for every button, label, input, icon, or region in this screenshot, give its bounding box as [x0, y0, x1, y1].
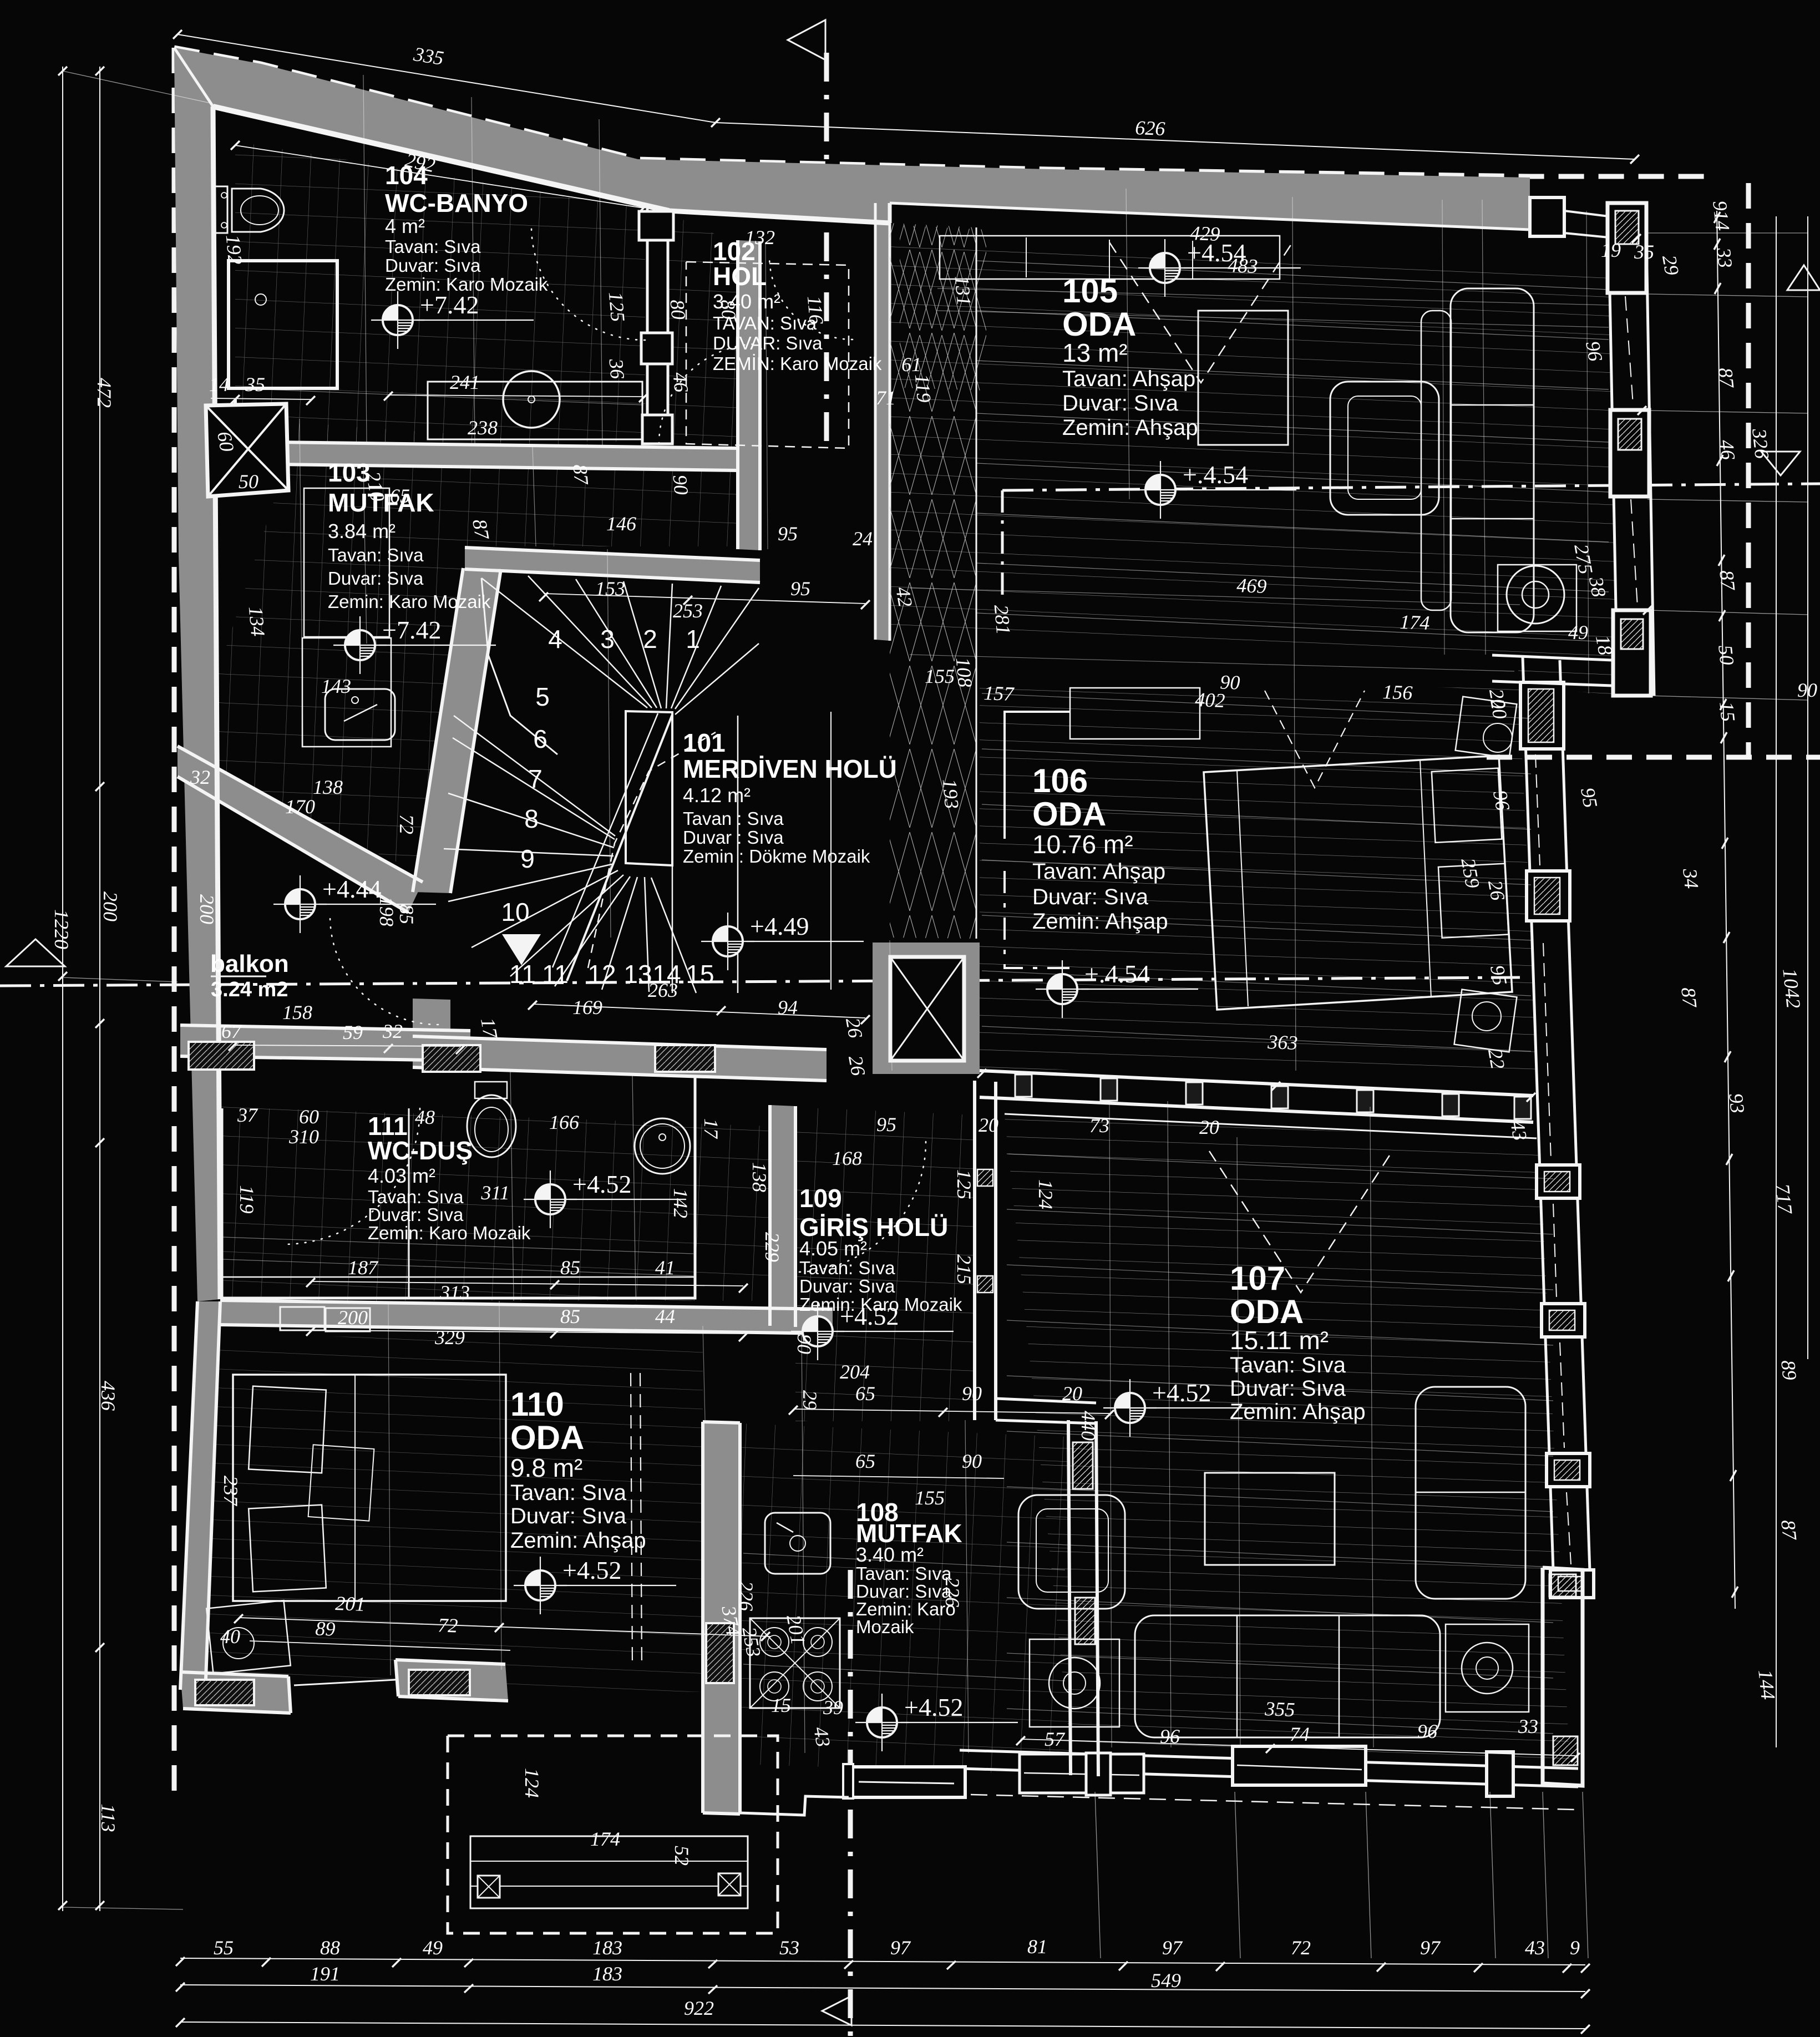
svg-text:132: 132 [745, 226, 775, 249]
svg-text:436: 436 [97, 1381, 119, 1411]
svg-text:142: 142 [670, 1188, 692, 1218]
svg-text:4.05 m²: 4.05 m² [799, 1237, 867, 1260]
svg-text:3: 3 [600, 625, 615, 653]
svg-text:+.4.54: +.4.54 [1183, 460, 1248, 489]
svg-text:200: 200 [99, 891, 121, 921]
svg-text:313: 313 [439, 1281, 470, 1304]
svg-text:34: 34 [1679, 867, 1703, 890]
svg-text:97: 97 [890, 1937, 911, 1959]
svg-text:Duvar: Sıva: Duvar: Sıva [368, 1204, 464, 1225]
svg-text:53: 53 [779, 1937, 799, 1959]
svg-text:85: 85 [560, 1256, 580, 1279]
svg-text:13 m²: 13 m² [1062, 338, 1128, 367]
svg-text:43: 43 [809, 1725, 835, 1749]
svg-text:Tavan: Sıva: Tavan: Sıva [799, 1258, 895, 1278]
svg-text:29: 29 [1658, 254, 1684, 277]
svg-text:204: 204 [840, 1361, 870, 1383]
svg-text:88: 88 [320, 1937, 340, 1959]
svg-text:Tavan: Sıva: Tavan: Sıva [510, 1481, 627, 1505]
svg-text:35: 35 [1634, 241, 1654, 263]
svg-text:55: 55 [214, 1937, 234, 1959]
svg-text:191: 191 [310, 1963, 340, 1985]
svg-text:93: 93 [1725, 1092, 1749, 1114]
svg-text:Duvar: Sıva: Duvar: Sıva [385, 255, 481, 276]
svg-text:113: 113 [97, 1803, 119, 1832]
svg-text:253: 253 [673, 600, 703, 622]
svg-text:20: 20 [1486, 697, 1512, 721]
svg-text:36: 36 [605, 357, 628, 379]
svg-text:37: 37 [237, 1104, 258, 1126]
svg-text:Zemin : Dökme Mozaik: Zemin : Dökme Mozaik [683, 846, 870, 867]
svg-text:ODA: ODA [510, 1419, 584, 1456]
svg-text:626: 626 [1135, 116, 1165, 140]
svg-text:87: 87 [1677, 986, 1701, 1010]
svg-text:Tavan: Sıva: Tavan: Sıva [385, 236, 481, 257]
svg-text:96: 96 [1417, 1720, 1437, 1742]
svg-text:215: 215 [953, 1254, 975, 1284]
svg-text:87: 87 [1714, 367, 1738, 390]
svg-text:32: 32 [382, 1020, 403, 1042]
svg-text:43: 43 [1506, 1119, 1532, 1142]
svg-text:59: 59 [343, 1021, 363, 1043]
svg-text:200: 200 [338, 1306, 368, 1329]
svg-text:335: 335 [412, 43, 445, 69]
svg-text:WC-DUŞ: WC-DUŞ [368, 1136, 473, 1165]
svg-text:174: 174 [1400, 611, 1430, 634]
svg-text:174: 174 [590, 1828, 620, 1850]
svg-text:3.24 m2: 3.24 m2 [211, 978, 288, 1001]
svg-text:138: 138 [748, 1162, 770, 1192]
svg-text:3.40 m²: 3.40 m² [856, 1543, 924, 1566]
svg-text:14: 14 [209, 373, 229, 396]
svg-text:125: 125 [953, 1169, 975, 1199]
svg-text:20: 20 [979, 1114, 998, 1136]
svg-text:90: 90 [668, 474, 692, 495]
svg-text:158: 158 [282, 1001, 312, 1023]
svg-text:90: 90 [1797, 679, 1817, 701]
svg-text:326: 326 [1748, 427, 1773, 460]
svg-text:95: 95 [1576, 786, 1602, 809]
svg-text:44: 44 [655, 1305, 675, 1327]
svg-text:131: 131 [951, 275, 976, 306]
svg-text:48: 48 [415, 1106, 435, 1128]
svg-text:200: 200 [196, 894, 218, 924]
svg-text:1: 1 [686, 625, 700, 653]
svg-text:41: 41 [655, 1256, 675, 1279]
svg-text:26: 26 [1484, 879, 1509, 902]
svg-text:1220: 1220 [50, 909, 73, 949]
svg-text:80: 80 [666, 298, 690, 320]
svg-text:15: 15 [771, 1694, 791, 1716]
svg-text:90: 90 [962, 1382, 982, 1405]
svg-text:97: 97 [1420, 1937, 1441, 1959]
svg-text:49: 49 [1568, 621, 1588, 643]
svg-text:11: 11 [542, 960, 569, 989]
svg-text:+.4.54: +.4.54 [1084, 960, 1150, 988]
svg-text:74: 74 [1290, 1723, 1310, 1745]
svg-text:355: 355 [1264, 1697, 1295, 1721]
svg-text:169: 169 [572, 996, 602, 1018]
svg-text:MERDİVEN HOLÜ: MERDİVEN HOLÜ [683, 754, 897, 783]
svg-text:4.12 m²: 4.12 m² [683, 784, 751, 807]
svg-text:8: 8 [524, 804, 539, 833]
svg-text:65: 65 [855, 1450, 875, 1472]
svg-text:19: 19 [1601, 239, 1621, 261]
svg-text:101: 101 [683, 728, 726, 757]
svg-text:Zemin: Ahşap: Zemin: Ahşap [1062, 415, 1198, 440]
svg-text:50: 50 [239, 470, 258, 493]
svg-text:85: 85 [396, 904, 418, 924]
svg-text:3.84 m²: 3.84 m² [328, 520, 396, 543]
svg-text:DUVAR: Sıva: DUVAR: Sıva [713, 333, 823, 353]
svg-text:+4.49: +4.49 [750, 912, 809, 940]
svg-text:+4.52: +4.52 [572, 1170, 631, 1198]
svg-text:15.11 m²: 15.11 m² [1230, 1326, 1329, 1355]
svg-text:914: 914 [1709, 200, 1733, 232]
svg-text:ZEMİN: Karo Mozaik: ZEMİN: Karo Mozaik [713, 353, 882, 374]
svg-text:144: 144 [1754, 1669, 1779, 1701]
svg-text:42: 42 [891, 585, 917, 609]
svg-text:329: 329 [434, 1326, 465, 1349]
svg-text:7: 7 [528, 764, 543, 793]
svg-text:549: 549 [1151, 1969, 1181, 1992]
svg-text:50: 50 [1714, 644, 1738, 666]
svg-text:Duvar: Sıva: Duvar: Sıva [799, 1276, 895, 1296]
svg-text:95: 95 [778, 523, 798, 545]
svg-text:Duvar : Sıva: Duvar : Sıva [683, 827, 784, 848]
svg-text:429: 429 [1190, 222, 1220, 245]
svg-text:Tavan: Ahşap: Tavan: Ahşap [1062, 367, 1195, 391]
svg-text:134: 134 [245, 605, 270, 637]
svg-text:46: 46 [668, 371, 692, 393]
svg-text:108: 108 [952, 656, 977, 688]
svg-text:4.03 m²: 4.03 m² [368, 1164, 435, 1187]
svg-text:+4.52: +4.52 [562, 1556, 621, 1584]
svg-text:Zemin: Karo Mozaik: Zemin: Karo Mozaik [328, 591, 491, 612]
svg-text:124: 124 [521, 1768, 543, 1798]
svg-text:469: 469 [1236, 574, 1267, 597]
svg-text:143: 143 [321, 675, 351, 697]
svg-text:Duvar: Sıva: Duvar: Sıva [510, 1504, 627, 1528]
svg-text:157: 157 [983, 682, 1015, 705]
svg-text:229: 229 [761, 1232, 783, 1262]
svg-text:226: 226 [941, 1577, 964, 1607]
svg-text:183: 183 [592, 1963, 622, 1985]
svg-text:146: 146 [606, 513, 636, 535]
svg-text:35: 35 [245, 373, 265, 396]
svg-text:281: 281 [990, 604, 1015, 635]
svg-text:95: 95 [876, 1113, 896, 1136]
svg-text:87: 87 [569, 463, 592, 486]
svg-text:29: 29 [799, 1390, 821, 1410]
svg-text:Duvar: Sıva: Duvar: Sıva [1032, 885, 1149, 909]
svg-text:363: 363 [1267, 1031, 1298, 1054]
svg-text:124: 124 [1035, 1179, 1057, 1209]
svg-text:4: 4 [548, 625, 562, 653]
svg-text:155: 155 [925, 665, 955, 687]
svg-text:110: 110 [510, 1386, 564, 1423]
svg-text:15: 15 [1715, 701, 1740, 723]
svg-text:95: 95 [790, 577, 810, 600]
svg-text:119: 119 [236, 1185, 258, 1213]
svg-text:187: 187 [348, 1256, 379, 1279]
svg-text:60: 60 [299, 1106, 319, 1128]
svg-text:20: 20 [1199, 1116, 1219, 1138]
svg-text:17: 17 [700, 1118, 722, 1139]
svg-text:109: 109 [799, 1184, 842, 1213]
svg-text:40: 40 [220, 1625, 240, 1648]
svg-text:ODA: ODA [1230, 1293, 1304, 1330]
svg-text:89: 89 [1777, 1359, 1801, 1381]
svg-text:15: 15 [686, 960, 714, 989]
svg-text:61: 61 [901, 353, 921, 376]
svg-text:201: 201 [335, 1592, 366, 1615]
svg-text:168: 168 [832, 1147, 862, 1169]
svg-text:80: 80 [716, 298, 740, 320]
svg-text:Mozaik: Mozaik [856, 1617, 914, 1637]
svg-text:96: 96 [1581, 339, 1607, 363]
svg-text:9.8 m²: 9.8 m² [510, 1453, 582, 1482]
svg-text:238: 238 [468, 417, 498, 439]
svg-text:472: 472 [93, 378, 115, 408]
svg-text:26: 26 [841, 1016, 867, 1040]
svg-text:9: 9 [1570, 1937, 1580, 1959]
svg-text:33: 33 [1712, 246, 1737, 269]
svg-text:1042: 1042 [1778, 967, 1804, 1010]
svg-text:95: 95 [1486, 964, 1512, 987]
svg-text:38: 38 [1585, 575, 1610, 599]
svg-text:116: 116 [803, 295, 828, 326]
svg-text:10.76 m²: 10.76 m² [1032, 830, 1133, 859]
svg-text:+4.52: +4.52 [904, 1693, 963, 1721]
svg-text:90: 90 [962, 1450, 982, 1472]
svg-text:156: 156 [1382, 681, 1413, 704]
svg-text:310: 310 [288, 1126, 319, 1148]
svg-text:HOL: HOL [713, 262, 767, 291]
svg-text:26: 26 [844, 1054, 870, 1077]
svg-text:170: 170 [285, 795, 315, 818]
svg-text:Tavan: Sıva: Tavan: Sıva [1230, 1353, 1346, 1377]
svg-text:106: 106 [1032, 762, 1088, 799]
svg-text:Zemin: Ahşap: Zemin: Ahşap [510, 1528, 646, 1553]
svg-text:717: 717 [1771, 1183, 1797, 1216]
svg-text:192: 192 [222, 234, 247, 265]
svg-text:11: 11 [509, 960, 536, 989]
svg-text:Tavan : Sıva: Tavan : Sıva [683, 808, 784, 829]
svg-text:73: 73 [1089, 1114, 1109, 1137]
svg-text:20: 20 [1062, 1382, 1082, 1405]
svg-text:483: 483 [1228, 254, 1258, 277]
svg-text:81: 81 [1027, 1935, 1047, 1958]
svg-text:+7.42: +7.42 [382, 616, 441, 644]
svg-text:125: 125 [605, 291, 630, 322]
svg-text:311: 311 [480, 1182, 509, 1204]
svg-text:183: 183 [592, 1937, 622, 1959]
svg-text:+4.44: +4.44 [322, 875, 381, 903]
svg-text:9: 9 [520, 844, 535, 873]
svg-text:Zemin: Ahşap: Zemin: Ahşap [1032, 909, 1168, 934]
svg-text:402: 402 [1195, 688, 1225, 712]
svg-text:87: 87 [1777, 1519, 1801, 1542]
svg-text:90: 90 [793, 1334, 815, 1354]
svg-text:2: 2 [643, 625, 657, 653]
svg-text:WC-BANYO: WC-BANYO [385, 189, 528, 217]
svg-text:67: 67 [221, 1020, 242, 1042]
svg-text:Zemin: Karo Mozaik: Zemin: Karo Mozaik [368, 1223, 531, 1243]
svg-text:237: 237 [220, 1476, 242, 1507]
svg-text:Tavan: Sıva: Tavan: Sıva [328, 545, 424, 565]
svg-text:46: 46 [1715, 439, 1740, 461]
svg-text:60: 60 [213, 430, 239, 453]
svg-text:138: 138 [313, 776, 343, 798]
svg-text:Zemin: Karo Mozaik: Zemin: Karo Mozaik [799, 1294, 962, 1315]
svg-text:198: 198 [376, 896, 398, 926]
svg-text:65: 65 [855, 1382, 875, 1405]
svg-text:18: 18 [1591, 634, 1617, 657]
svg-text:85: 85 [560, 1305, 580, 1327]
svg-text:97: 97 [1162, 1937, 1183, 1959]
svg-text:Zemin: Karo Mozaik: Zemin: Karo Mozaik [385, 274, 548, 295]
svg-text:balkon: balkon [210, 950, 289, 977]
svg-text:10: 10 [501, 898, 529, 926]
svg-text:Zemin: Ahşap: Zemin: Ahşap [1230, 1400, 1366, 1424]
svg-text:263: 263 [648, 979, 678, 1001]
svg-text:4 m²: 4 m² [385, 215, 425, 237]
svg-text:72: 72 [1291, 1937, 1311, 1959]
svg-text:96: 96 [1489, 789, 1514, 812]
svg-text:87: 87 [1715, 569, 1740, 592]
svg-text:33: 33 [1518, 1715, 1538, 1737]
svg-text:241: 241 [450, 371, 480, 393]
svg-text:12: 12 [587, 960, 616, 989]
svg-text:166: 166 [549, 1111, 579, 1133]
svg-text:39: 39 [823, 1696, 843, 1719]
svg-text:440: 440 [1077, 1411, 1099, 1441]
svg-text:71: 71 [876, 387, 896, 409]
svg-text:43: 43 [1525, 1937, 1545, 1959]
svg-text:155: 155 [915, 1487, 945, 1509]
svg-text:ODA: ODA [1032, 795, 1106, 833]
svg-text:105: 105 [1062, 272, 1118, 310]
svg-text:Duvar: Sıva: Duvar: Sıva [328, 568, 424, 589]
svg-text:57: 57 [1045, 1728, 1066, 1750]
svg-text:6: 6 [533, 724, 547, 753]
svg-text:119: 119 [911, 373, 935, 404]
svg-text:72: 72 [396, 814, 418, 834]
svg-text:24: 24 [853, 528, 873, 550]
svg-text:+7.42: +7.42 [420, 291, 479, 319]
svg-text:52: 52 [671, 1846, 693, 1866]
svg-text:5: 5 [535, 682, 550, 711]
svg-text:22: 22 [1484, 1047, 1509, 1071]
svg-text:193: 193 [939, 778, 964, 809]
svg-text:49: 49 [423, 1937, 443, 1959]
svg-text:ODA: ODA [1062, 306, 1136, 343]
svg-text:32: 32 [190, 766, 210, 788]
svg-text:922: 922 [684, 1997, 714, 2019]
svg-text:Duvar: Sıva: Duvar: Sıva [1062, 391, 1179, 415]
svg-text:65: 65 [390, 485, 410, 507]
